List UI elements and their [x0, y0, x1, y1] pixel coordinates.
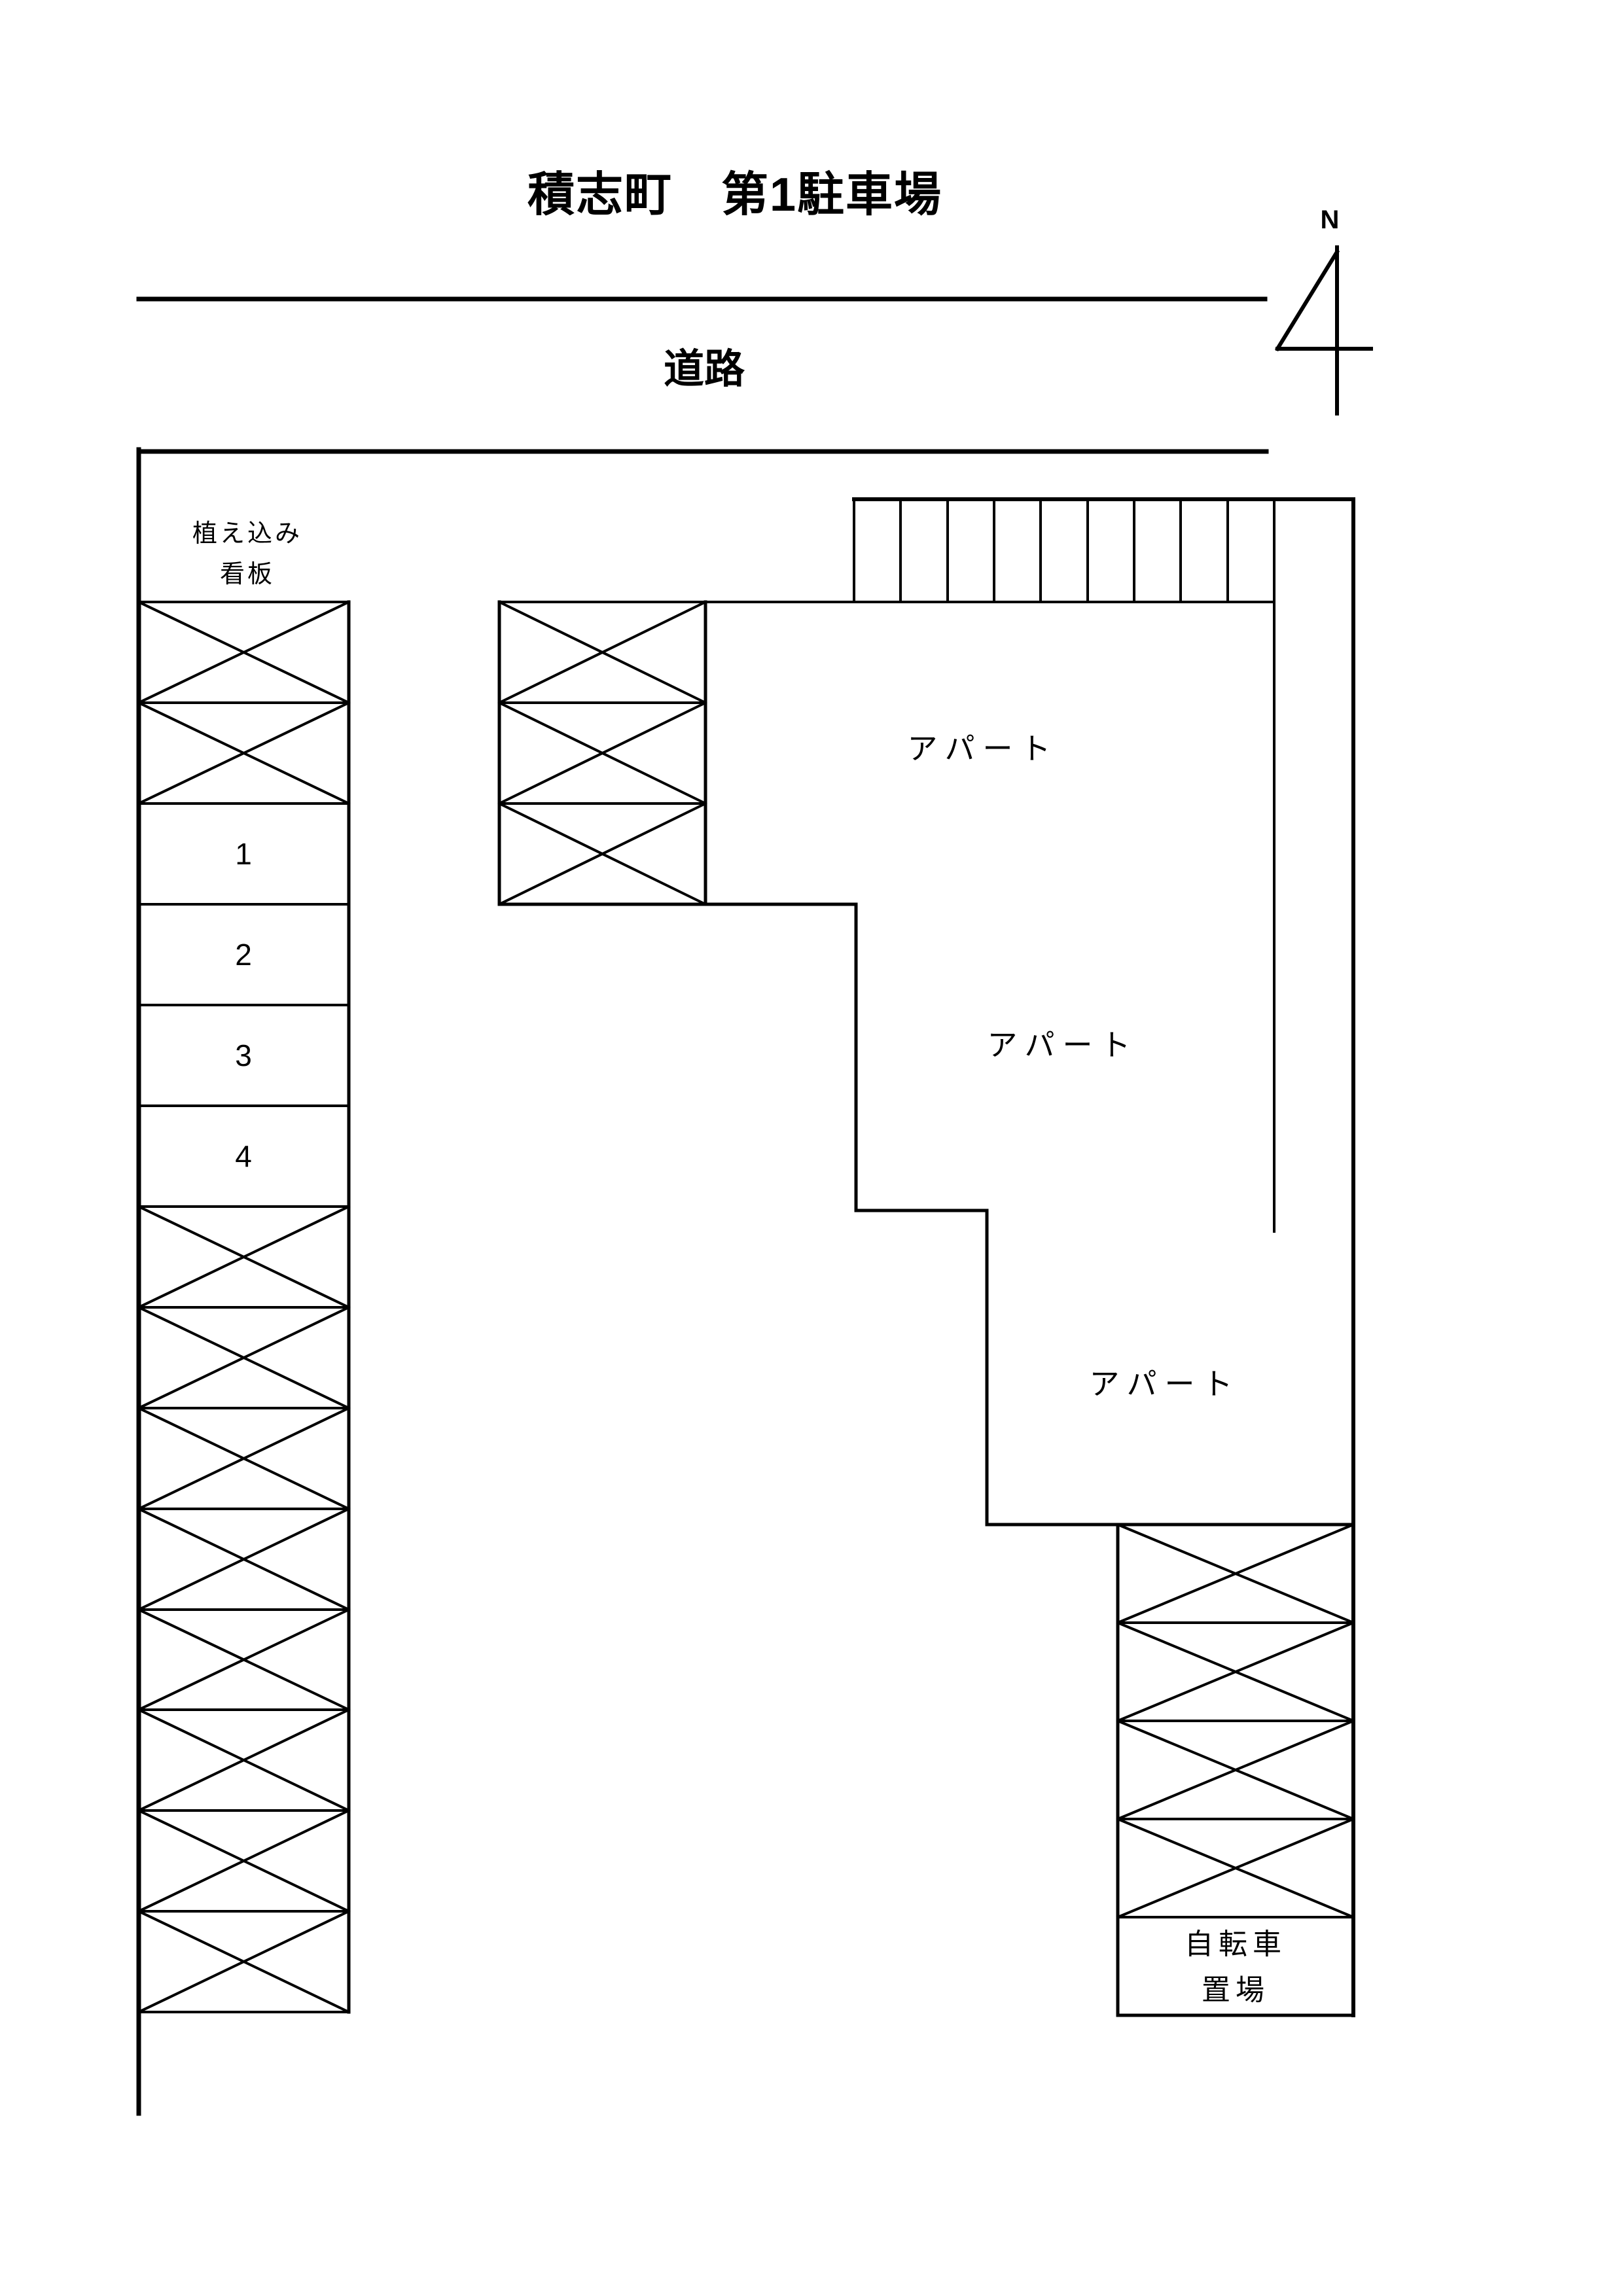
parking-spot-number-4: 4 [235, 1141, 252, 1171]
blocked-cell-x [499, 602, 705, 703]
parking-spot-number-1: 1 [235, 839, 252, 869]
blocked-cell-x [139, 1207, 349, 1307]
blocked-cell-x [139, 1911, 349, 2012]
bicycle-parking-label-line1: 自転車 [1185, 1930, 1287, 1959]
apartment-label-2: アパート [987, 1030, 1138, 1060]
blocked-cell-x [139, 602, 349, 703]
blocked-cell-x [139, 1307, 349, 1408]
planting-label: 植え込み [192, 521, 302, 546]
blocked-cell-x [1118, 1525, 1353, 1623]
north-label: N [1321, 207, 1340, 233]
blocked-cell-x [1118, 1721, 1353, 1819]
parking-lot-map-page: { "page": { "title": "積志町 第1駐車場" }, "com… [0, 0, 1623, 2296]
left-parking-column [139, 602, 349, 2012]
blocked-cell-x [139, 1810, 349, 1911]
signboard-label: 看板 [220, 562, 275, 587]
parking-spot-number-3: 3 [235, 1040, 252, 1070]
bicycle-parking-label-line2: 置場 [1202, 1976, 1270, 2005]
blocked-cell-x [139, 1509, 349, 1610]
road-label: 道路 [664, 349, 745, 390]
page-title: 積志町 第1駐車場 [527, 171, 942, 219]
blocked-cell-x [139, 1408, 349, 1509]
apartment-label-3: アパート [1089, 1369, 1240, 1399]
blocked-cell-x [499, 703, 705, 804]
blocked-cell-x [139, 1710, 349, 1810]
apartment-boundary [856, 904, 1118, 1525]
apartment-label-1: アパート [907, 733, 1058, 764]
middle-parking-column [499, 602, 856, 904]
blocked-cell-x [139, 703, 349, 804]
parking-spot-number-2: 2 [235, 940, 252, 970]
blocked-cell-x [1118, 1623, 1353, 1721]
blocked-cell-x [1118, 1819, 1353, 1917]
north-arrow-icon [1277, 247, 1371, 414]
blocked-cell-x [139, 1610, 349, 1710]
blocked-cell-x [499, 804, 705, 904]
